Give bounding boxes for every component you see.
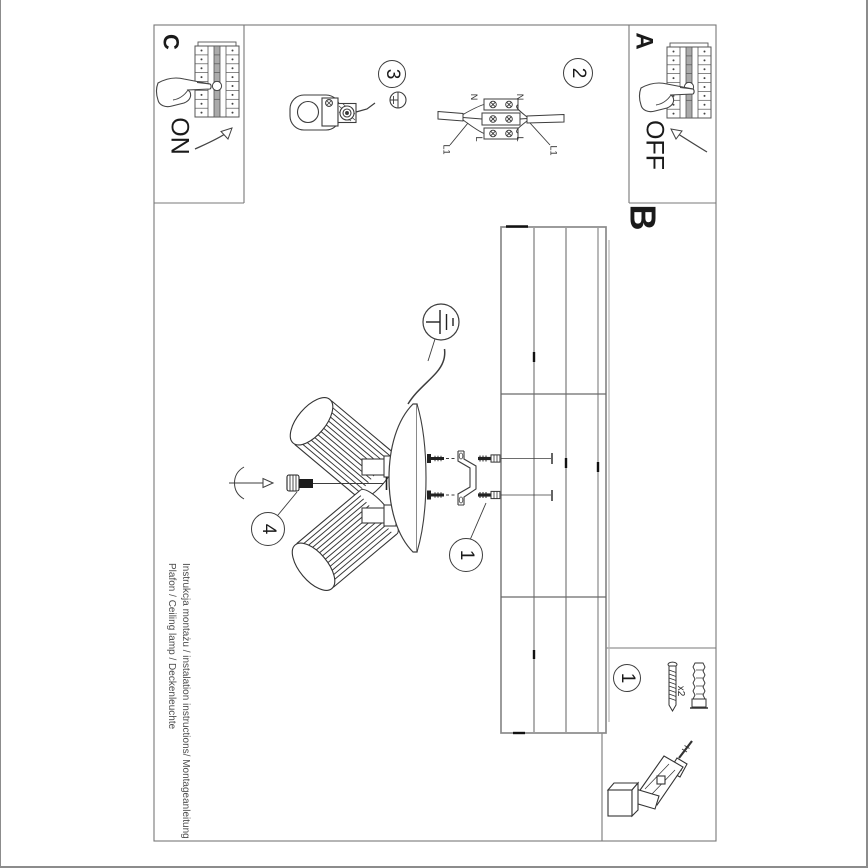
wire-label-n-left: N: [469, 91, 479, 103]
lamp-holder-illustration: [290, 92, 406, 130]
instruction-line-art: [1, 0, 868, 868]
step-1-badge: 1: [449, 538, 483, 572]
wire-label-l-right: L: [515, 133, 525, 145]
wire-label-l-left: L: [474, 133, 484, 145]
section-a-action: OFF: [644, 119, 666, 172]
section-a-label: A: [632, 31, 656, 52]
step-2-badge: 2: [563, 58, 593, 88]
anchor-quantity-label: x2: [675, 683, 687, 699]
section-b-label: B: [626, 205, 661, 231]
footer-line-1: Instrukcja montażu / instalation instruc…: [178, 563, 192, 863]
step-4-badge: 4: [251, 512, 285, 546]
ceiling-plan-illustration: [501, 227, 609, 734]
section-c-label: C: [160, 32, 182, 53]
footer-line-2: Plafon / Ceiling lamp / Deckenleuchte: [164, 563, 178, 863]
instruction-sheet-page: C ON A OFF B 3 2 4 1 1 N N L L L1 L1 x2 …: [0, 0, 868, 868]
wire-label-l1-left: L1: [442, 142, 453, 158]
footer-text: Instrukcja montażu / instalation instruc…: [164, 563, 192, 863]
wire-label-l1-right: L1: [549, 143, 560, 159]
ceiling-lamp-illustration: [282, 304, 459, 598]
terminal-block-illustration: [438, 99, 564, 145]
step-3-badge: 3: [378, 60, 406, 88]
sheet-border: [154, 25, 716, 841]
wire-label-n-right: N: [515, 91, 525, 103]
parts-box-step-badge: 1: [613, 664, 641, 692]
section-c-action: ON: [169, 114, 191, 159]
